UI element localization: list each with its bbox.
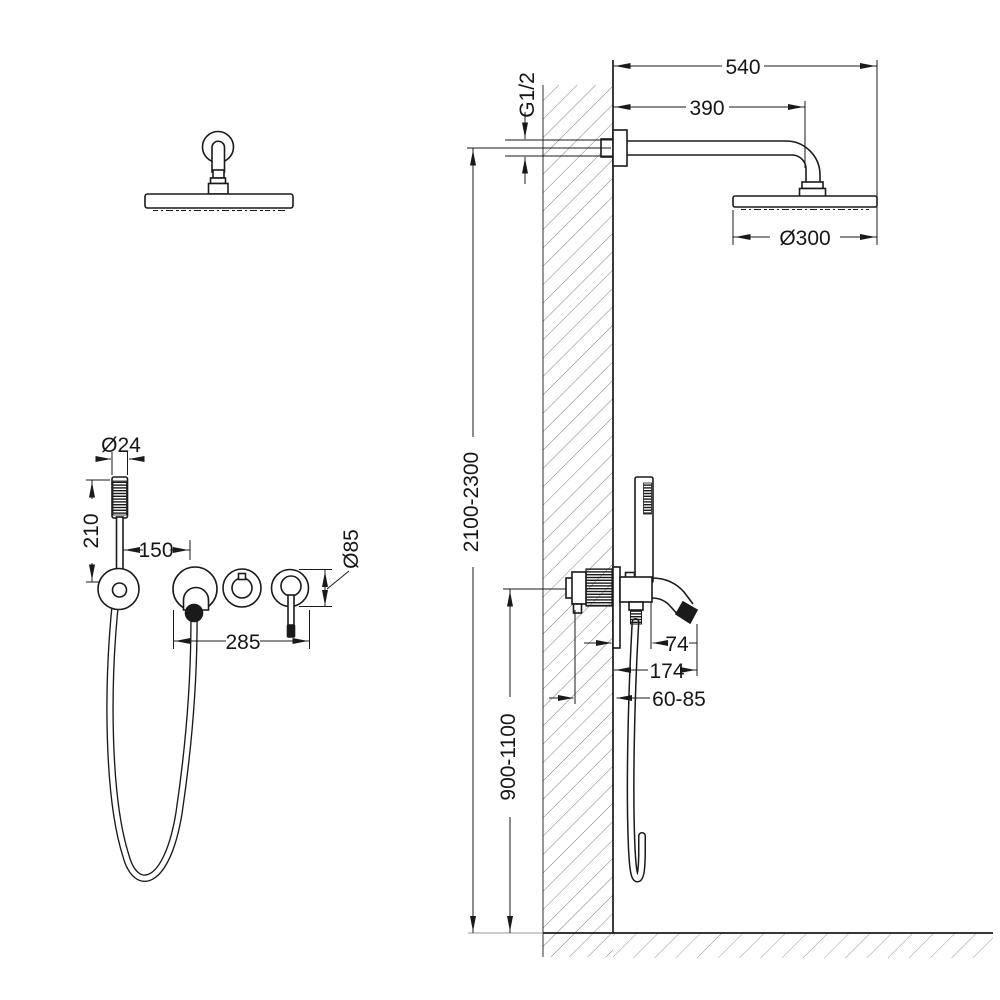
rain-shower-front <box>145 132 293 211</box>
technical-drawing-page: Ø24 210 150 285 <box>0 0 1000 1000</box>
dim-arm-overall-label: 540 <box>725 56 760 79</box>
holder-knob <box>113 583 127 597</box>
head-ring <box>802 182 823 189</box>
lever-handle-tip <box>288 625 295 637</box>
arm-wall-flange <box>613 130 627 166</box>
dim-rough-in-depth-label: 60-85 <box>652 688 706 711</box>
dim-spout-projection-label: 174 <box>649 660 684 683</box>
hose-nut-side <box>629 602 643 610</box>
arm-neck <box>213 170 224 178</box>
spout-top-line <box>652 578 693 604</box>
arm-bend-outer <box>786 141 820 175</box>
wall-hatch <box>543 85 613 957</box>
side-view: 540 390 G1/2 2100-2300 <box>460 56 993 958</box>
dim-handshower-height-label: 210 <box>80 513 103 548</box>
shower-head-front <box>145 194 293 208</box>
dim-head-diameter-label: Ø300 <box>779 227 830 250</box>
valve-body-block <box>572 572 586 604</box>
dim-trim-diameter-label: Ø85 <box>340 529 363 569</box>
spout-outlet-tip <box>676 602 697 623</box>
lever-hub <box>281 576 301 596</box>
diverter-notch <box>239 574 246 580</box>
shower-installation-diagram: Ø24 210 150 285 <box>0 0 1000 1000</box>
shower-head-side <box>733 196 877 207</box>
shower-arm-front <box>212 141 225 172</box>
dim-spout-offset-label: 74 <box>665 633 689 656</box>
dim-holder-to-mixer-label: 150 <box>138 539 173 562</box>
spout-outlet-front <box>186 605 203 622</box>
diverter-knob <box>232 578 252 598</box>
dim-mixer-width-label: 285 <box>225 631 260 654</box>
mixer-body-side <box>620 577 652 602</box>
dim-arm-projection-label: 390 <box>689 97 724 120</box>
dim-mixer-height-label: 900-1100 <box>497 713 520 800</box>
spout-bottom-line <box>652 598 679 616</box>
dim-handshower-diameter-label: Ø24 <box>101 434 141 457</box>
hand-shower-front <box>98 477 194 878</box>
arm-ring <box>211 178 226 184</box>
dim-connection-thread-label: G1/2 <box>516 72 539 118</box>
wall-section <box>468 60 993 958</box>
handshower-spray-ribs <box>113 481 127 515</box>
handshower-spray-ribs-side <box>644 483 652 514</box>
dim-install-height-label: 2100-2300 <box>460 452 483 552</box>
head-connector <box>209 184 229 195</box>
trim-plate-side <box>613 567 620 648</box>
floor-hatch <box>613 933 993 958</box>
lever-handle-bar <box>288 595 294 626</box>
arm-bend-inner <box>792 155 806 169</box>
valve-cartridge-ribbed <box>586 569 612 606</box>
hose-connector-ribbed <box>631 610 642 624</box>
hose-front-core <box>110 597 194 878</box>
front-view: Ø24 210 150 285 <box>80 132 363 879</box>
